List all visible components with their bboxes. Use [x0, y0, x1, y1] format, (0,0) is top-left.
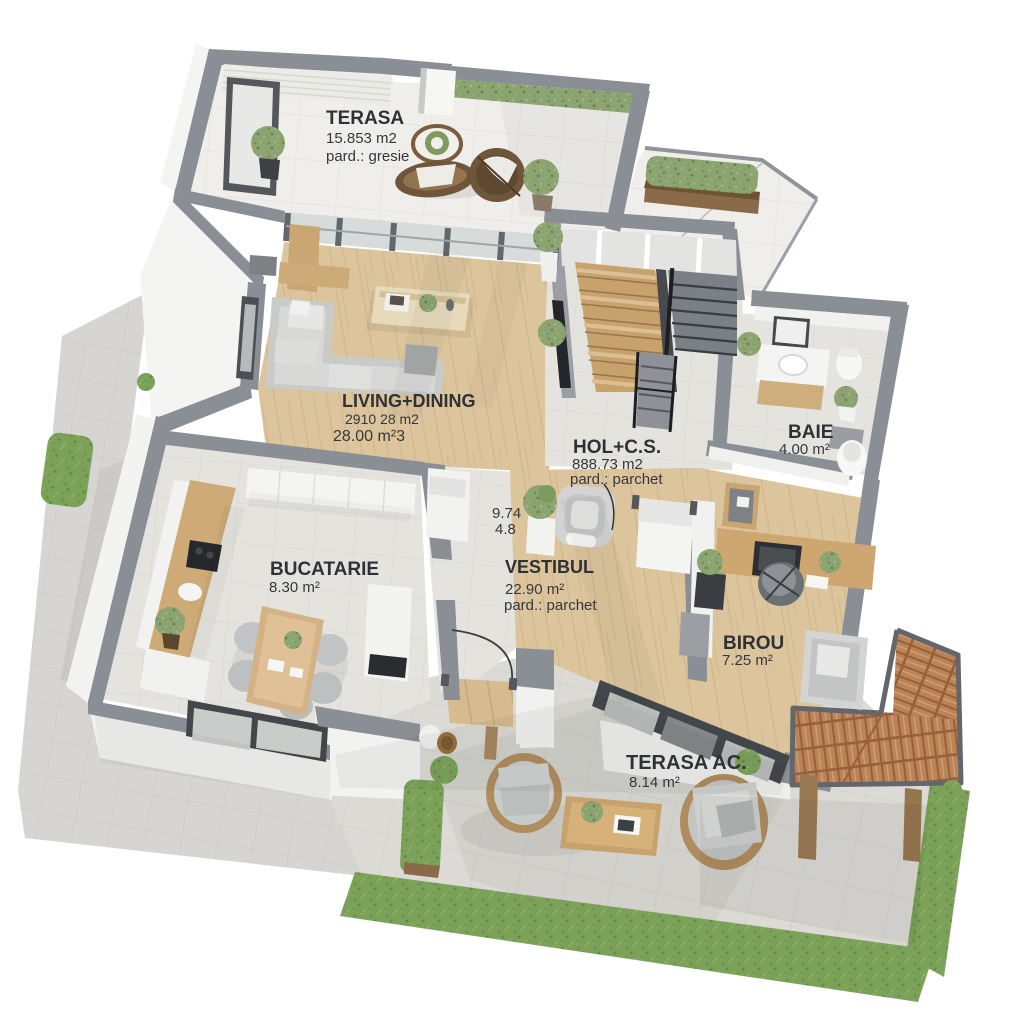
svg-text:28.00 m²3: 28.00 m²3 — [333, 428, 405, 445]
svg-text:LIVING+DINING: LIVING+DINING — [342, 391, 476, 411]
svg-text:pard.: parchet: pard.: parchet — [570, 471, 663, 488]
svg-text:pard.: gresie: pard.: gresie — [326, 148, 409, 165]
svg-text:9.74: 9.74 — [492, 505, 521, 522]
svg-text:7.25 m²: 7.25 m² — [722, 652, 773, 669]
svg-text:TERASA: TERASA — [326, 108, 404, 129]
svg-text:15.853 m2: 15.853 m2 — [326, 130, 397, 147]
svg-text:22.90 m²: 22.90 m² — [505, 581, 564, 598]
svg-text:TERASA AC.: TERASA AC. — [626, 752, 747, 774]
svg-text:BAIE: BAIE — [788, 422, 833, 443]
svg-text:2910 28 m2: 2910 28 m2 — [345, 411, 419, 427]
svg-text:VESTIBUL: VESTIBUL — [505, 557, 594, 577]
svg-text:BIROU: BIROU — [723, 633, 784, 654]
svg-text:8.14 m²: 8.14 m² — [629, 774, 680, 791]
svg-text:8.30 m²: 8.30 m² — [269, 579, 320, 596]
svg-text:4.8: 4.8 — [495, 521, 516, 538]
svg-text:BUCATARIE: BUCATARIE — [270, 559, 379, 580]
svg-text:HOL+C.S.: HOL+C.S. — [573, 437, 661, 458]
svg-text:pard.: parchet: pard.: parchet — [504, 597, 597, 614]
svg-text:4.00 m²: 4.00 m² — [779, 441, 830, 458]
